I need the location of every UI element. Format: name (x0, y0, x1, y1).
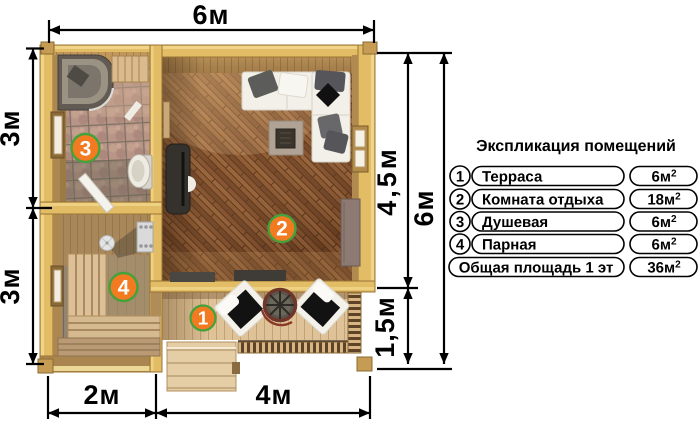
svg-text:3: 3 (80, 138, 92, 161)
svg-text:6м: 6м (409, 190, 439, 227)
svg-text:4: 4 (456, 237, 465, 254)
svg-text:1,5м: 1,5м (370, 296, 400, 358)
svg-text:Парная: Парная (482, 237, 536, 254)
svg-text:Общая площадь 1 эт: Общая площадь 1 эт (459, 260, 614, 277)
svg-text:Терраса: Терраса (482, 169, 543, 186)
svg-text:4: 4 (118, 277, 130, 300)
svg-text:3м: 3м (0, 110, 25, 147)
svg-text:3м: 3м (0, 268, 25, 305)
svg-text:Комната отдыха: Комната отдыха (482, 192, 604, 209)
svg-text:4м: 4м (256, 380, 293, 410)
svg-text:2: 2 (276, 218, 288, 241)
svg-text:4,5м: 4,5м (372, 146, 402, 216)
svg-text:Экспликация помещений: Экспликация помещений (476, 138, 676, 155)
svg-text:2м: 2м (84, 380, 121, 410)
svg-text:Душевая: Душевая (482, 214, 548, 231)
svg-text:1: 1 (456, 169, 464, 186)
svg-text:1: 1 (198, 309, 209, 330)
svg-text:6м: 6м (193, 0, 230, 30)
svg-text:3: 3 (456, 214, 464, 231)
svg-text:2: 2 (456, 192, 464, 209)
